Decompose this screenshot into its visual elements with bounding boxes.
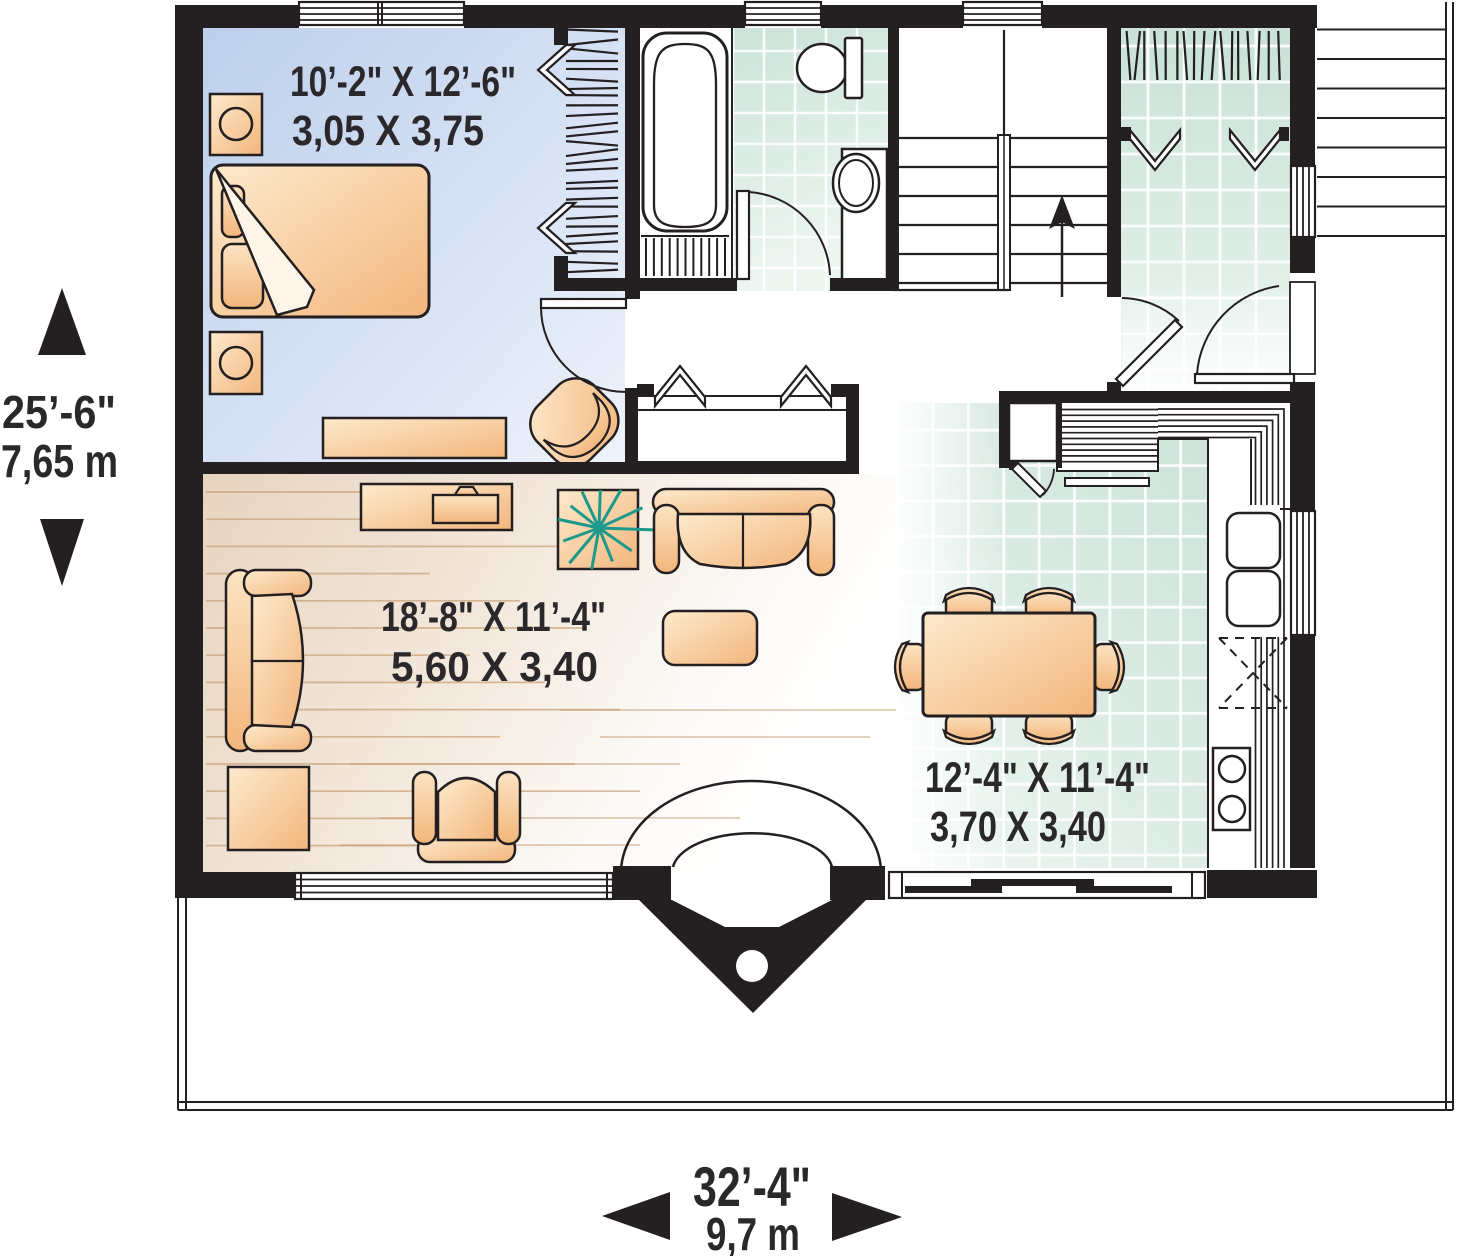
svg-text:12’-4" X 11’-4": 12’-4" X 11’-4" bbox=[925, 754, 1150, 802]
svg-text:3,05 X 3,75: 3,05 X 3,75 bbox=[292, 107, 484, 155]
svg-text:7,65 m: 7,65 m bbox=[1, 435, 118, 487]
svg-text:3,70 X 3,40: 3,70 X 3,40 bbox=[930, 803, 1106, 851]
svg-text:25’-6": 25’-6" bbox=[2, 386, 116, 438]
svg-text:9,7 m: 9,7 m bbox=[706, 1208, 800, 1256]
svg-text:10’-2" X 12’-6": 10’-2" X 12’-6" bbox=[290, 58, 516, 106]
svg-text:18’-8" X 11’-4": 18’-8" X 11’-4" bbox=[381, 593, 606, 640]
svg-text:5,60 X 3,40: 5,60 X 3,40 bbox=[391, 643, 598, 690]
